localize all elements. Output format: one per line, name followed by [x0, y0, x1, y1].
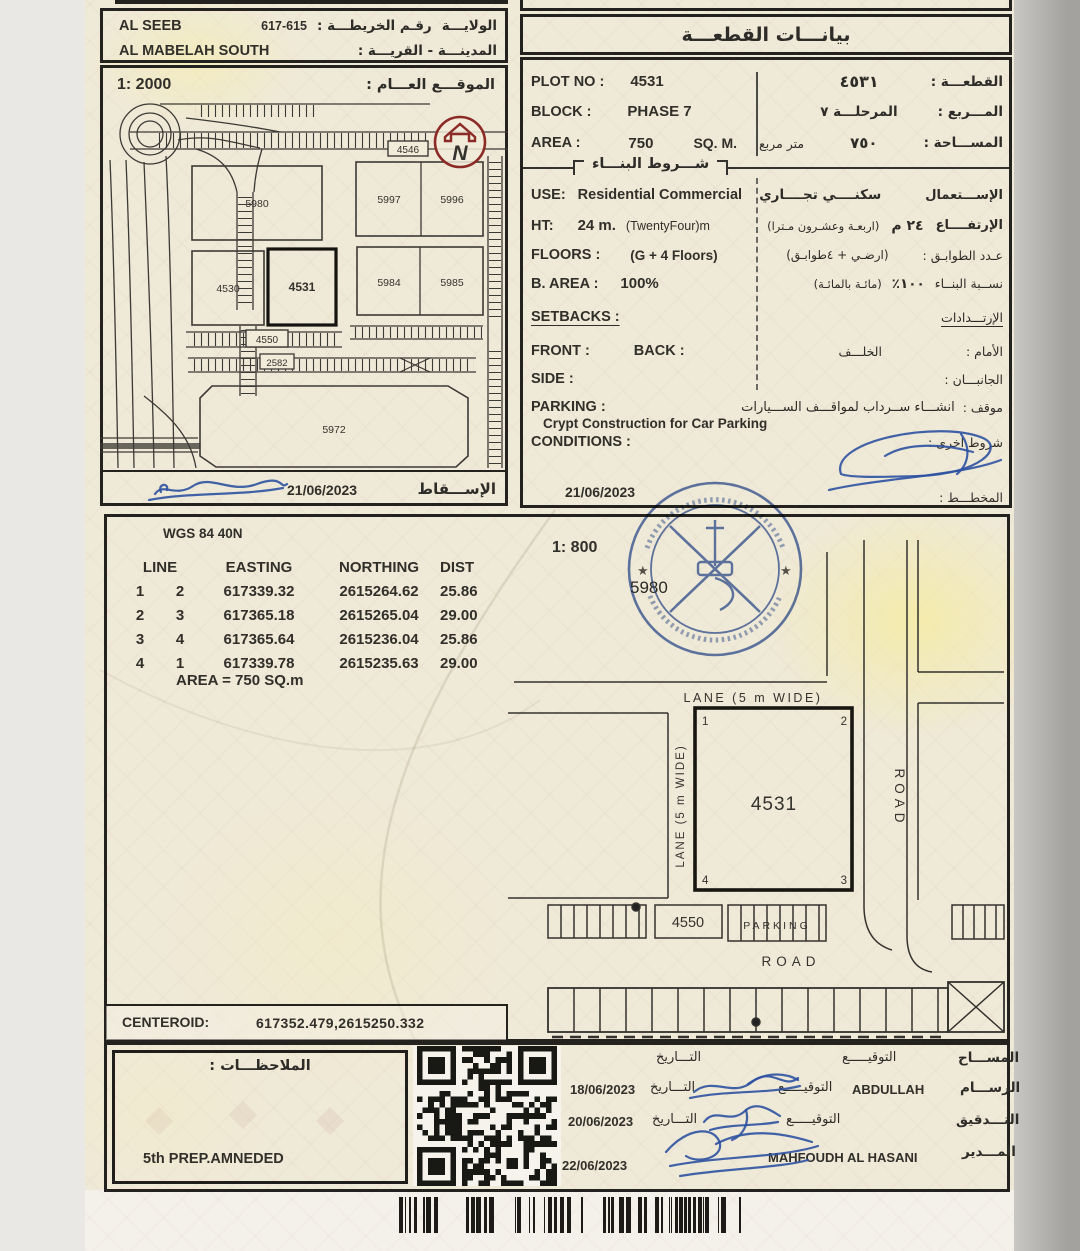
- date-label-2: التـــاريخ: [650, 1080, 695, 1095]
- corner-2: 2: [841, 716, 847, 728]
- plot-diagram: LANE (5 m WIDE) LANE (5 m WIDE) 4531 1 2…: [508, 510, 1010, 1042]
- scanned-krooki-document: AL SEEB الولايـــة رقـم الخريطـــة : 617…: [0, 0, 1080, 1251]
- projection-date: 21/06/2023: [287, 482, 357, 498]
- table-cell: 2: [160, 580, 200, 603]
- projection-caption: الإســـقاط: [418, 480, 496, 498]
- setbacks-label: SETBACKS :: [531, 309, 620, 325]
- table-cell: 29.00: [440, 652, 510, 675]
- diagram-plot-number: 4531: [751, 794, 797, 815]
- height-note-ar: (اربعـة وعشـرون مـترا): [767, 219, 879, 233]
- draftsman-date: 18/06/2023: [570, 1082, 635, 1097]
- use-value-ar: سكنــــي تجــــاري: [759, 187, 881, 203]
- height-value: 24 m.: [578, 217, 616, 234]
- town-label: المدينـــة - القريـــة :: [358, 43, 497, 59]
- map-plot-5997: 5997: [377, 194, 401, 206]
- table-cell: 3: [120, 628, 160, 651]
- barea-note-ar: (مائـة بالمائـة): [814, 277, 882, 291]
- back-label-ar: الخلـــف: [839, 344, 882, 359]
- scan-right-margin: [1014, 0, 1080, 1251]
- watermark-star: [229, 1101, 257, 1129]
- side-label-ar: الجانبـــان :: [944, 372, 1003, 387]
- qr-code: [413, 1046, 561, 1186]
- cut-top-box-right: [520, 0, 1012, 11]
- manager-label: المـــدير: [962, 1144, 1016, 1160]
- area-label-ar: المســـاحة :: [924, 135, 1003, 151]
- projection-signature: [145, 476, 290, 504]
- draftsman-name: ABDULLAH: [852, 1082, 924, 1097]
- road-bottom-label: ROAD: [761, 954, 820, 969]
- audit-label: التـــدقيق: [956, 1112, 1019, 1128]
- area-summary: AREA = 750 SQ.m: [176, 672, 303, 689]
- plot-no-label: PLOT NO :: [531, 74, 604, 90]
- table-cell: 1: [120, 580, 160, 603]
- map-plot-4550: 4550: [256, 335, 279, 346]
- town-value: AL MABELAH SOUTH: [119, 43, 269, 59]
- barea-label: B. AREA :: [531, 276, 598, 292]
- block-value: PHASE 7: [627, 103, 691, 120]
- centeroid-label: CENTEROID:: [122, 1014, 209, 1030]
- coordinates-table: LINE EASTING NORTHING DIST 1 2 617339.32…: [120, 556, 520, 675]
- centeroid-value: 617352.479,2615250.332: [256, 1015, 424, 1031]
- height-label: HT:: [531, 218, 554, 234]
- table-cell: 29.00: [440, 604, 510, 627]
- use-label-ar: الإســـتعمال: [925, 188, 1003, 203]
- side-label: SIDE :: [531, 371, 574, 387]
- block-label: BLOCK :: [531, 104, 591, 120]
- header-box: AL SEEB الولايـــة رقـم الخريطـــة : 617…: [100, 8, 508, 63]
- plot-data-title-box: بيانـــات القطعـــة: [520, 14, 1012, 55]
- map-plot-4530: 4530: [216, 283, 240, 295]
- table-cell: 4: [120, 652, 160, 675]
- corner-1: 1: [702, 716, 708, 728]
- conditions-label: CONDITIONS :: [531, 434, 631, 450]
- floors-label: FLOORS :: [531, 247, 600, 263]
- back-label: BACK :: [634, 343, 685, 359]
- col-header-dist: DIST: [440, 556, 510, 579]
- table-cell: 4: [160, 628, 200, 651]
- date-label-1: التـــاريخ: [656, 1050, 701, 1065]
- col-header-line: LINE: [120, 556, 200, 579]
- draftsman-signature: [688, 1068, 803, 1104]
- area-label: AREA :: [531, 135, 580, 151]
- barea-value-ar: ١٠٠٪: [892, 276, 925, 292]
- plot-data-title: بيانـــات القطعـــة: [681, 24, 850, 46]
- watermark-star: [316, 1107, 344, 1135]
- map-plot-5980: 5980: [245, 198, 269, 210]
- centeroid-box: CENTEROID: 617352.479,2615250.332: [104, 1004, 508, 1042]
- barea-value: 100%: [620, 275, 658, 292]
- datum-label: WGS 84 40N: [163, 526, 243, 541]
- map-plot-5996: 5996: [440, 194, 464, 206]
- watermark-star: [145, 1107, 173, 1135]
- col-header-northing: NORTHING: [318, 556, 440, 579]
- sign-label-1: التوقيـــــع: [842, 1050, 896, 1065]
- table-cell: 617365.64: [200, 628, 318, 651]
- area-value: 750: [628, 135, 653, 152]
- table-cell: 25.86: [440, 580, 510, 603]
- front-label: FRONT :: [531, 343, 590, 359]
- map-plot-5984: 5984: [377, 277, 401, 289]
- cut-top-line-left: [115, 0, 508, 4]
- map-plot-4531: 4531: [289, 280, 316, 294]
- parking-strip-label: PARKING: [743, 920, 810, 932]
- plot-no-value-ar: ٤٥٣١: [840, 72, 879, 91]
- table-cell: 3: [160, 604, 200, 627]
- table-cell: 2615264.62: [318, 580, 440, 603]
- manager-signature: [656, 1118, 826, 1190]
- north-letter: N: [452, 142, 468, 165]
- building-conditions-header: شـــروط البنـــاء: [523, 161, 1009, 175]
- planner-label-ar: المخطـــط :: [939, 490, 1003, 505]
- map-no-label: رقـم الخريطـــة :: [317, 18, 432, 34]
- diagram-plot-4550: 4550: [672, 915, 704, 931]
- map-plot-5985: 5985: [440, 277, 464, 289]
- site-plan-scale: 1: 2000: [117, 76, 171, 94]
- audit-date: 20/06/2023: [568, 1114, 633, 1129]
- table-cell: 617339.32: [200, 580, 318, 603]
- block-value-ar: المرحلـــة ٧: [820, 104, 897, 120]
- map-plot-4546: 4546: [397, 145, 420, 156]
- region-value: AL SEEB: [119, 18, 182, 34]
- floors-value-ar: (ارضـي + ٤طوابـق): [786, 248, 888, 262]
- table-cell: 617365.18: [200, 604, 318, 627]
- height-value-ar: ٢٤ م: [891, 218, 923, 234]
- floors-value: (G + 4 Floors): [630, 248, 717, 263]
- north-arrow-icon: N: [435, 117, 485, 167]
- manager-date: 22/06/2023: [562, 1158, 627, 1173]
- table-cell: 2615236.04: [318, 628, 440, 651]
- draftsman-label: الرســـام: [960, 1080, 1020, 1096]
- table-cell: 25.86: [440, 628, 510, 651]
- area-unit: SQ. M.: [693, 135, 737, 151]
- lane-left-label: LANE (5 m WIDE): [675, 744, 687, 867]
- site-plan-title: الموقـــع العـــام :: [366, 77, 495, 93]
- col-header-easting: EASTING: [200, 556, 318, 579]
- notes-box: الملاحظـــات : 5th PREP.AMNEDED: [112, 1050, 408, 1184]
- barea-label-ar: نســبة البنــاء: [935, 276, 1003, 291]
- plot-data-box: PLOT NO : 4531 القطعـــة : ٤٥٣١ BLOCK : …: [520, 57, 1012, 508]
- front-label-ar: الأمام :: [966, 344, 1003, 359]
- table-cell: 2: [120, 604, 160, 627]
- map-plot-2582: 2582: [266, 358, 287, 369]
- notes-value: 5th PREP.AMNEDED: [143, 1151, 284, 1167]
- area-unit-ar: متر مربع: [759, 136, 804, 151]
- corner-4: 4: [702, 875, 709, 887]
- site-plan-map: N 5980 5997 5996 4530 4531 5984 5985 454…: [100, 96, 508, 468]
- surveyor-label: المســـاح: [958, 1050, 1019, 1066]
- table-cell: 2615235.63: [318, 652, 440, 675]
- height-label-ar: الإرتفــــاع: [936, 218, 1003, 233]
- block-label-ar: المـــربع :: [938, 104, 1003, 120]
- corner-3: 3: [841, 875, 847, 887]
- height-note: (TwentyFour)m: [626, 219, 710, 233]
- parking-label: PARKING :: [531, 399, 606, 415]
- site-plan-footer: 21/06/2023 الإســـقاط: [100, 470, 508, 506]
- barcode: [390, 1197, 764, 1235]
- road-right-label: ROAD: [892, 768, 907, 827]
- lane-top-label: LANE (5 m WIDE): [684, 691, 823, 705]
- use-label: USE:: [531, 187, 566, 203]
- use-value: Residential Commercial: [578, 187, 742, 203]
- area-value-ar: ٧٥٠: [850, 134, 877, 152]
- map-no-value: 617-615: [261, 19, 307, 33]
- notes-title: الملاحظـــات :: [115, 1058, 405, 1074]
- map-plot-5972: 5972: [322, 424, 346, 436]
- building-conditions-title: شـــروط البنـــاء: [584, 156, 717, 172]
- floors-label-ar: عـدد الطوابـق :: [923, 248, 1003, 263]
- setbacks-label-ar: الإرتـــدادات: [941, 310, 1003, 325]
- plot-no-value: 4531: [630, 73, 663, 90]
- plot-no-label-ar: القطعـــة :: [931, 74, 1003, 90]
- table-cell: 2615265.04: [318, 604, 440, 627]
- region-label: الولايـــة: [442, 18, 497, 34]
